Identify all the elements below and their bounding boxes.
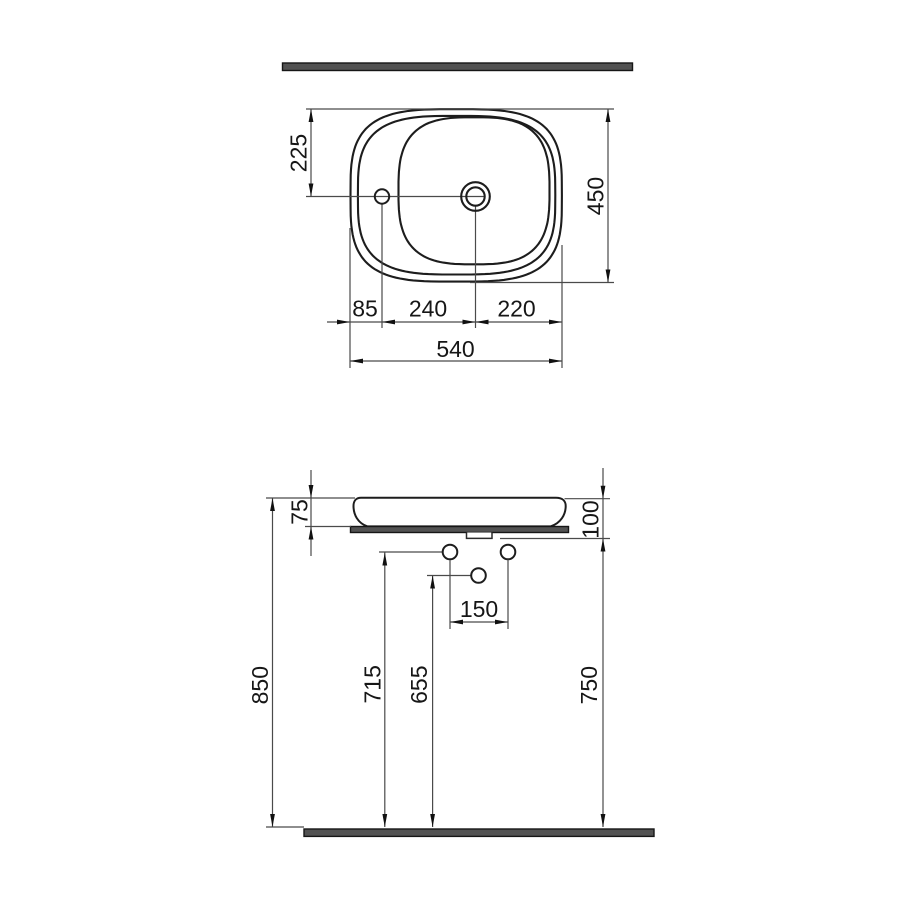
svg-text:540: 540: [436, 336, 474, 362]
svg-text:715: 715: [360, 665, 386, 703]
svg-text:450: 450: [583, 177, 609, 215]
svg-text:240: 240: [409, 296, 447, 322]
svg-text:750: 750: [576, 666, 602, 704]
svg-text:75: 75: [287, 499, 313, 525]
svg-text:655: 655: [406, 666, 432, 704]
svg-text:220: 220: [497, 296, 535, 322]
svg-text:85: 85: [352, 296, 378, 322]
svg-text:850: 850: [247, 666, 273, 704]
svg-text:225: 225: [286, 134, 312, 172]
svg-text:100: 100: [578, 500, 604, 538]
svg-text:150: 150: [460, 596, 498, 622]
